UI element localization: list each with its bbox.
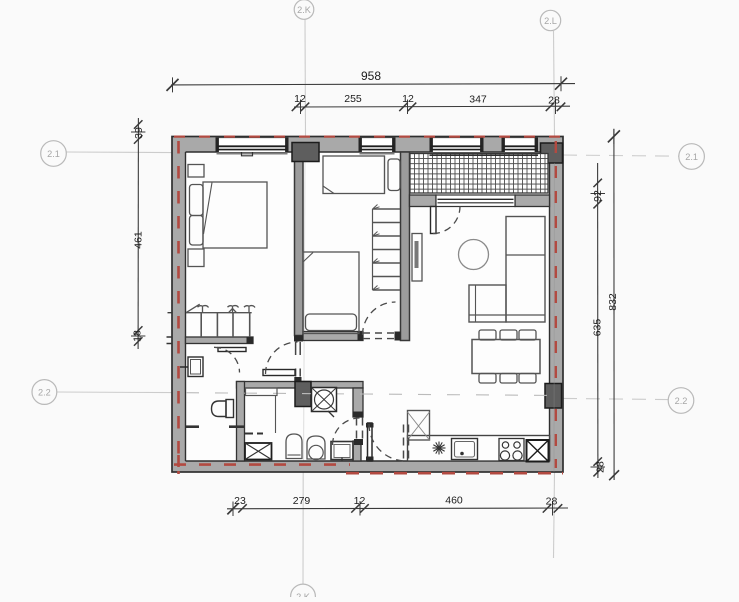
svg-text:2.L: 2.L	[544, 16, 557, 26]
svg-text:28: 28	[548, 95, 560, 107]
svg-text:460: 460	[445, 495, 463, 507]
svg-text:39: 39	[133, 127, 145, 139]
svg-text:2.1: 2.1	[685, 152, 698, 162]
svg-text:18: 18	[132, 330, 144, 342]
svg-text:28: 28	[546, 496, 558, 508]
svg-text:832: 832	[607, 293, 619, 311]
svg-text:347: 347	[469, 94, 487, 106]
svg-text:2.1: 2.1	[47, 149, 60, 159]
svg-text:958: 958	[361, 69, 381, 83]
svg-text:279: 279	[293, 495, 311, 507]
svg-text:461: 461	[133, 231, 145, 249]
svg-text:92: 92	[592, 190, 604, 202]
svg-text:2.K: 2.K	[296, 592, 311, 597]
svg-text:23: 23	[234, 495, 246, 507]
svg-text:12: 12	[294, 93, 306, 105]
svg-text:255: 255	[344, 93, 362, 105]
svg-text:12: 12	[402, 93, 414, 105]
svg-text:2.2: 2.2	[675, 396, 688, 406]
svg-text:28: 28	[595, 461, 607, 473]
svg-text:2.K: 2.K	[297, 5, 312, 15]
svg-text:2.2: 2.2	[38, 387, 51, 397]
svg-text:635: 635	[592, 319, 604, 337]
svg-text:12: 12	[354, 495, 366, 507]
